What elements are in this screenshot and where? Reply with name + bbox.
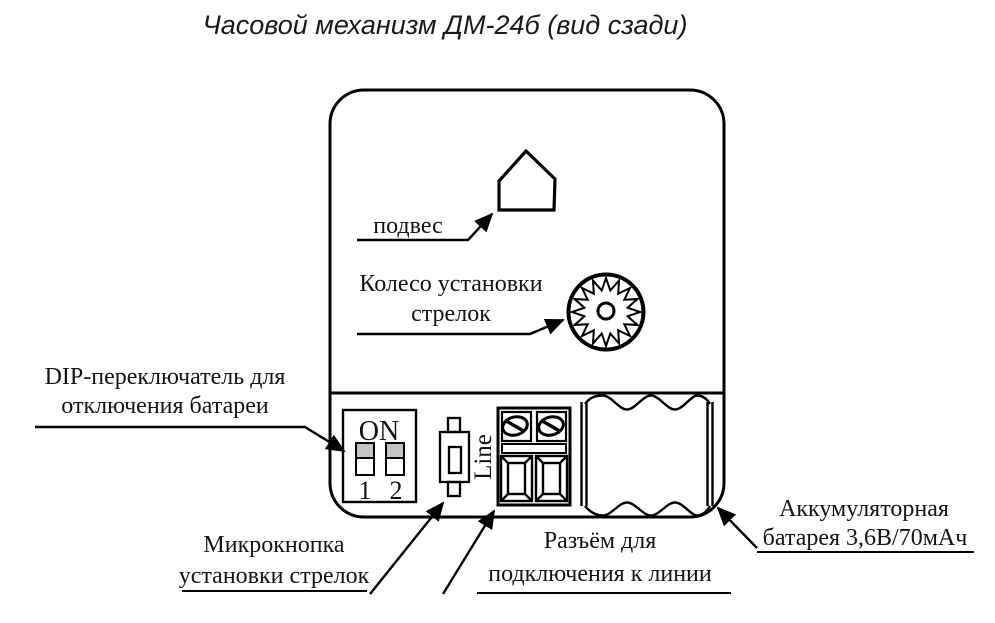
wheel-label-line1: Колесо установки [359, 271, 542, 297]
dip-switch: ON 1 2 [343, 410, 416, 505]
terminal-wire-cell-left [501, 456, 532, 501]
battery-label-line1: Аккумуляторная [779, 496, 949, 522]
clock-mechanism-diagram: Часовой механизм ДМ-24б (вид сзади) подв… [0, 0, 995, 623]
dip-switch-2-handle [386, 443, 404, 458]
dip-num-2: 2 [390, 476, 403, 505]
connector-leader-arrow [443, 511, 494, 594]
micro-button-top-tab [448, 418, 460, 432]
dip-switch-1-handle [356, 443, 374, 458]
screw-right-slot [542, 421, 561, 432]
button-label-line1: Микрокнопка [203, 532, 344, 558]
battery-leader-arrow [718, 508, 757, 548]
dip-label-line1: DIP-переключатель для [45, 364, 286, 390]
dip-leader-arrow [35, 427, 344, 451]
battery-top-wave [585, 396, 710, 410]
wheel-label-line2: стрелок [411, 301, 491, 327]
micro-button [440, 418, 469, 496]
micro-button-bottom-tab [448, 482, 460, 496]
battery-bottom-wave [585, 503, 710, 516]
dip-num-1: 1 [359, 476, 372, 505]
line-label: Line [470, 434, 497, 480]
hands-wheel-teeth [572, 278, 640, 346]
terminal-wire-cell-right [536, 456, 567, 501]
hanger-shape [499, 151, 555, 210]
battery-label-line2: батарея 3,6В/70мАч [763, 525, 968, 551]
hanger-label: подвес [373, 213, 442, 239]
micro-button-body [440, 432, 469, 482]
hands-wheel-hub [598, 303, 614, 319]
connector-label-line1: Разъём для [544, 528, 657, 554]
button-label-line2: установки стрелок [179, 563, 370, 589]
terminal-middle-band [502, 444, 566, 453]
hands-setting-wheel [569, 275, 644, 350]
connector-label-line2: подключения к линии [488, 561, 712, 587]
dip-label-line2: отключения батареи [61, 393, 269, 419]
battery-compartment [582, 396, 713, 516]
page-title: Часовой механизм ДМ-24б (вид сзади) [203, 10, 688, 40]
hands-wheel-rim [569, 275, 644, 350]
micro-button-plunger [449, 447, 461, 473]
line-terminal-block [498, 408, 570, 505]
screw-left-slot [506, 421, 525, 432]
diagram-page: Часовой механизм ДМ-24б (вид сзади) подв… [0, 0, 995, 623]
